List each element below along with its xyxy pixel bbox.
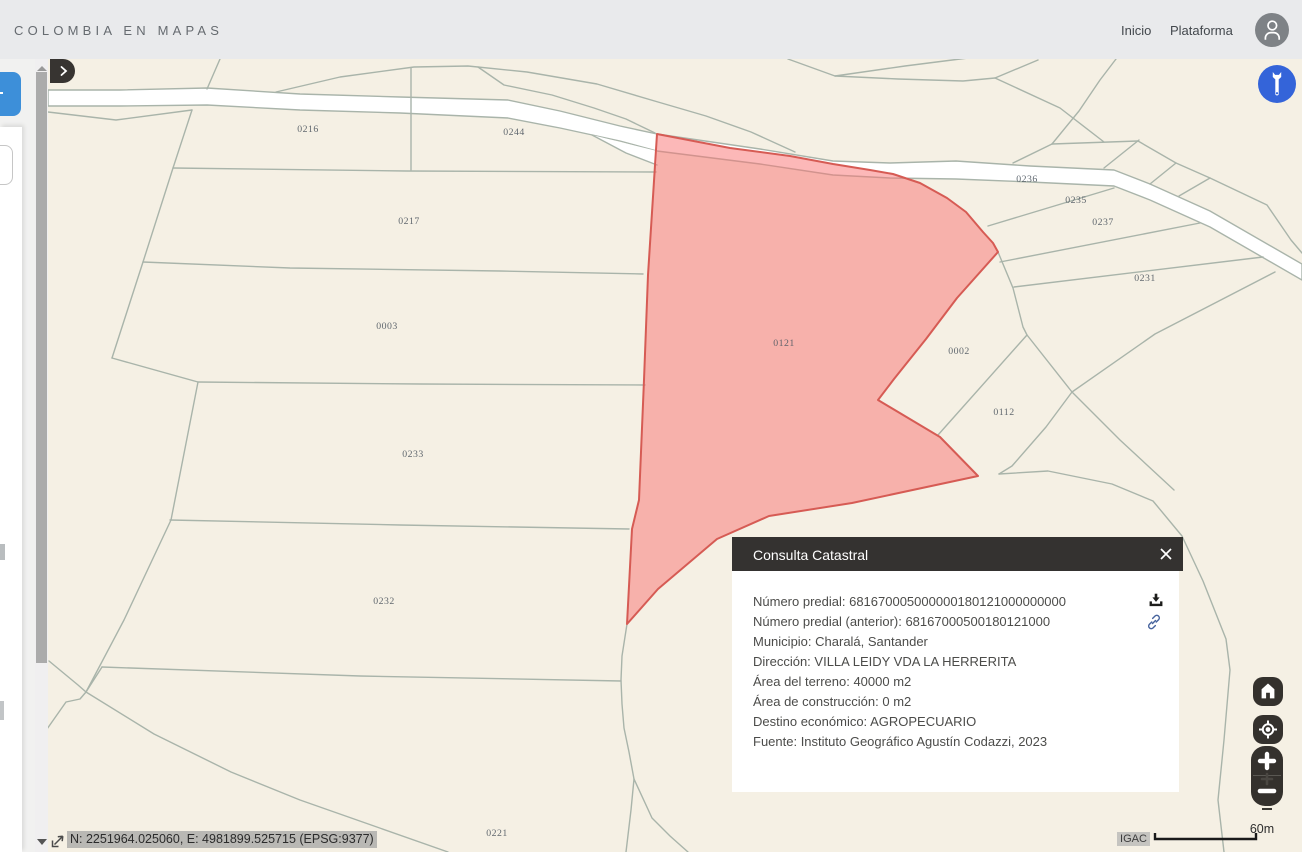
svg-text:0232: 0232 [373,596,395,607]
svg-text:60m: 60m [1250,822,1274,836]
svg-text:0244: 0244 [503,127,525,138]
svg-text:0233: 0233 [402,449,424,460]
svg-text:0002: 0002 [948,346,970,357]
svg-text:0112: 0112 [993,407,1014,418]
svg-text:0121: 0121 [773,338,795,349]
svg-text:0003: 0003 [376,321,398,332]
svg-text:0221: 0221 [486,828,508,839]
svg-text:0217: 0217 [398,216,420,227]
svg-text:0231: 0231 [1134,273,1156,284]
svg-text:0216: 0216 [297,124,319,135]
svg-text:0236: 0236 [1016,174,1038,185]
svg-text:0235: 0235 [1065,195,1087,206]
svg-text:0237: 0237 [1092,217,1114,228]
